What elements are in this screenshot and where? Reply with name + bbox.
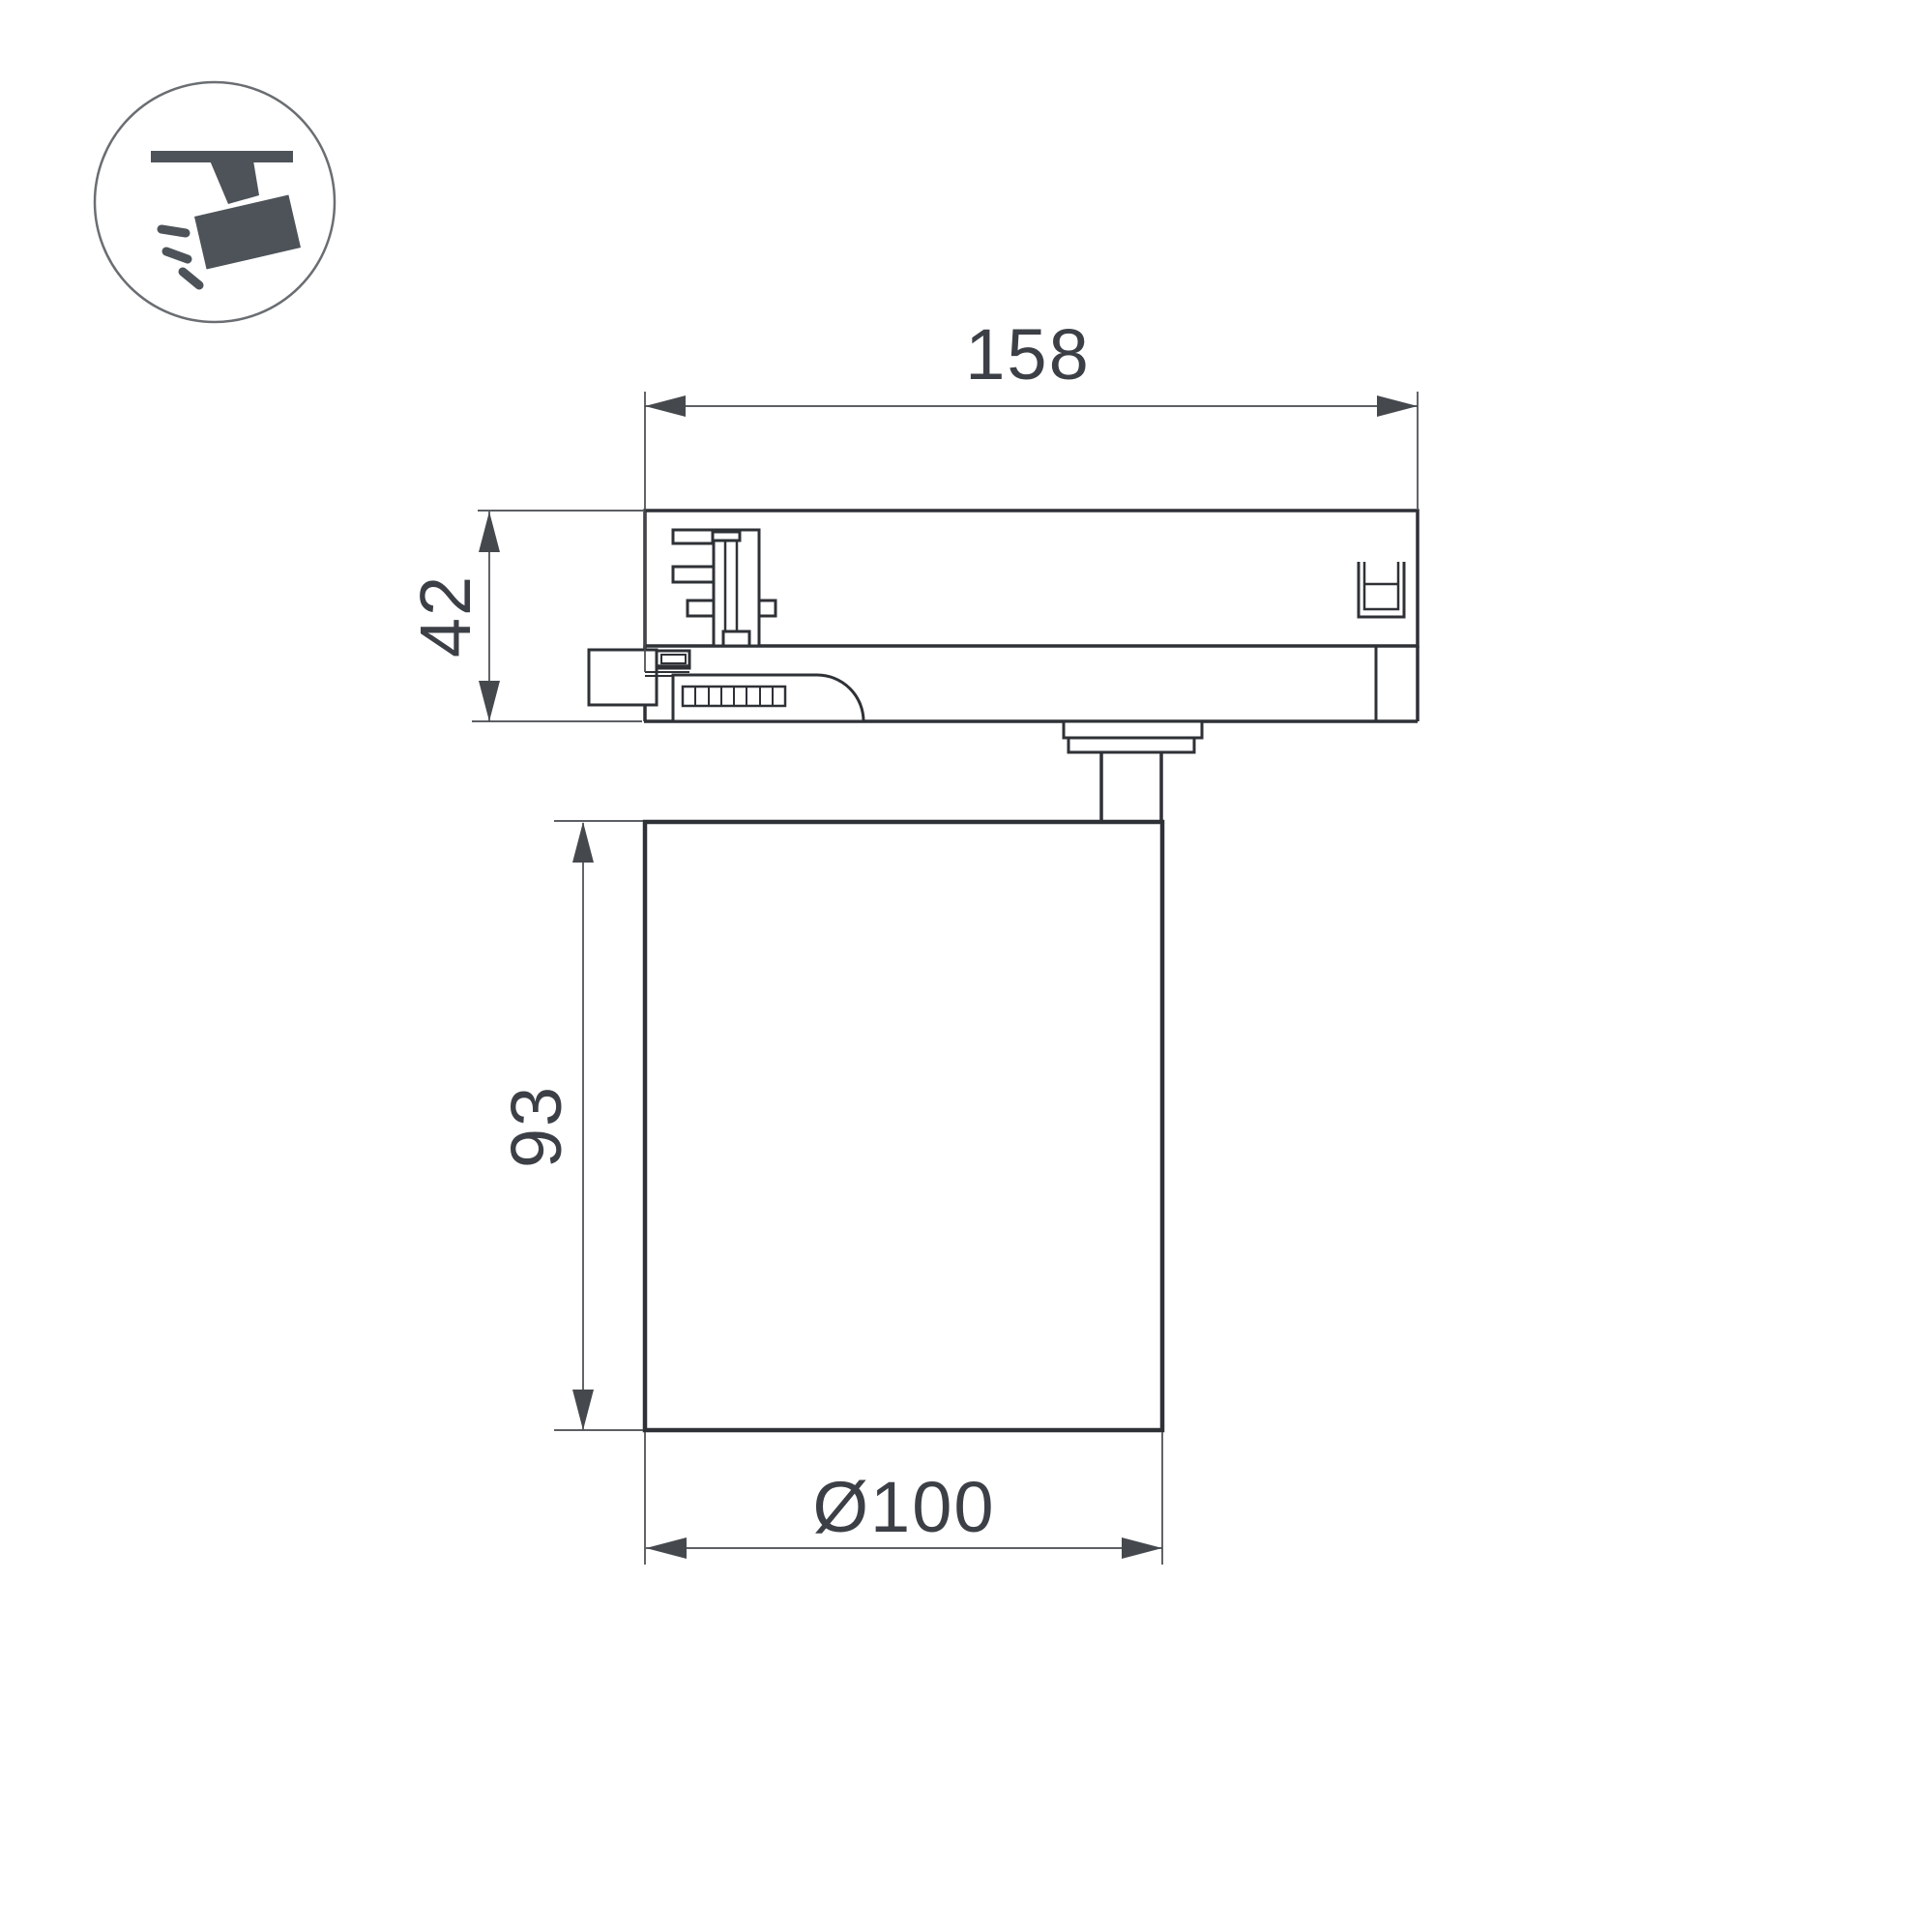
dim-body-height-label: 93 — [496, 1085, 576, 1168]
locking-lever — [589, 650, 657, 705]
mount-plate-upper — [1064, 721, 1202, 738]
adapter-upper-body — [645, 511, 1418, 646]
icon-light-ray — [161, 229, 186, 233]
dimension-drawing: 158 42 93 Ø100 — [0, 0, 1932, 1932]
grip-housing — [673, 675, 864, 721]
contact-prong-top — [673, 530, 714, 543]
dim-track-width-label: 158 — [965, 314, 1090, 395]
icon-circle — [95, 82, 335, 322]
contact-tab-right — [759, 600, 776, 616]
mount-plate-lower — [1068, 738, 1194, 752]
contact-prong-middle — [673, 567, 714, 582]
lamp-body — [645, 822, 1162, 1430]
contact-pin-foot — [723, 631, 749, 646]
dim-adapter-height-label: 42 — [405, 574, 485, 658]
drawing-page: 158 42 93 Ø100 — [0, 0, 1932, 1932]
track-spotlight-icon — [95, 82, 335, 322]
contact-pin-cap — [713, 532, 740, 541]
contact-prong-bottom — [688, 600, 714, 616]
dim-body-diameter-label: Ø100 — [812, 1467, 995, 1547]
